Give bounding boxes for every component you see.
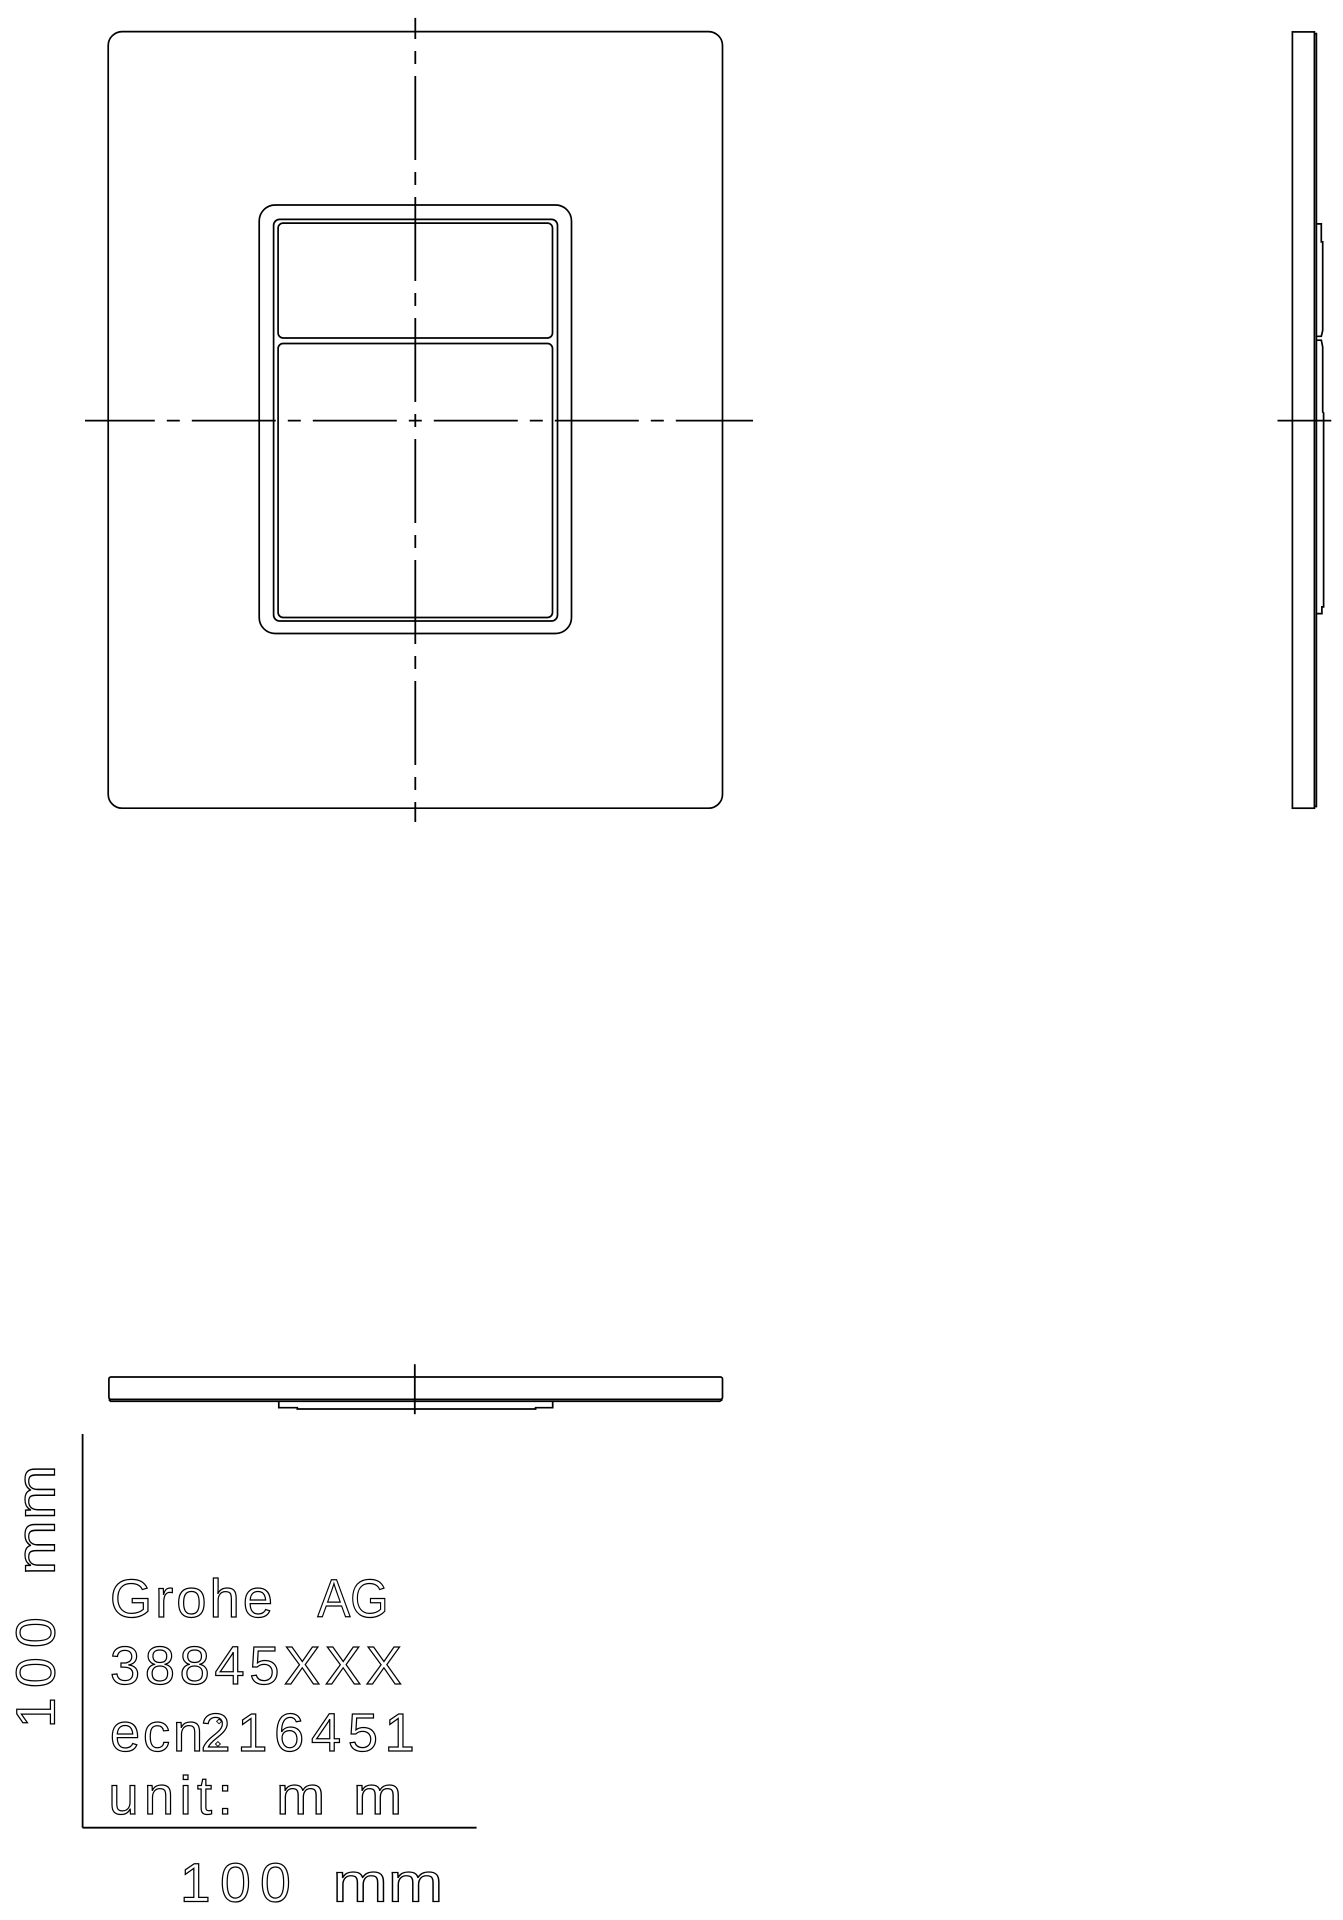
svg-text:ecn: ecn (110, 1703, 206, 1763)
svg-text:m: m (353, 1766, 402, 1826)
svg-text:mm: mm (5, 1465, 67, 1576)
svg-text:AG: AG (318, 1569, 389, 1629)
svg-text:216451: 216451 (201, 1703, 422, 1763)
svg-text:100: 100 (5, 1608, 67, 1728)
svg-text:Grohe: Grohe (110, 1569, 276, 1629)
svg-text:mm: mm (333, 1852, 444, 1914)
svg-text:100: 100 (180, 1852, 300, 1914)
svg-text:38845XXX: 38845XXX (110, 1636, 407, 1696)
svg-text:m: m (276, 1766, 325, 1826)
svg-text:unit:: unit: (109, 1766, 239, 1826)
